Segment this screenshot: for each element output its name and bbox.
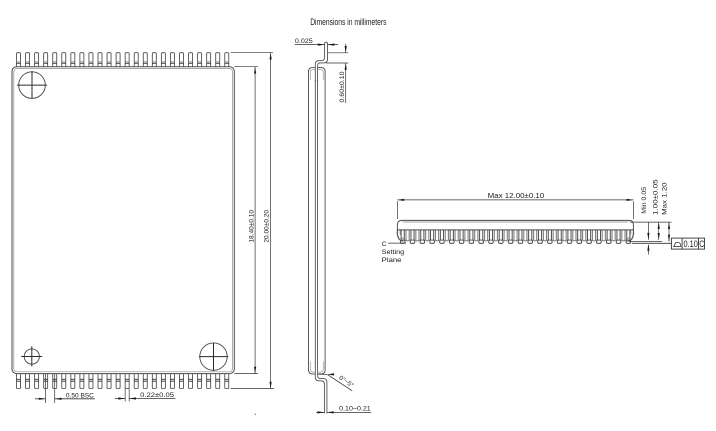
svg-text:C: C xyxy=(699,239,704,249)
svg-text:18.40±0.10: 18.40±0.10 xyxy=(248,210,255,243)
svg-text:20.00±0.20: 20.00±0.20 xyxy=(264,210,271,243)
svg-text:0.50 BSC: 0.50 BSC xyxy=(66,392,95,399)
svg-text:Setting: Setting xyxy=(382,249,405,256)
svg-text:0.60±0.10: 0.60±0.10 xyxy=(339,71,346,102)
svg-text:Plane: Plane xyxy=(382,257,402,264)
svg-text:Dimensions in millimeters: Dimensions in millimeters xyxy=(310,17,387,27)
svg-text:C: C xyxy=(382,241,387,248)
svg-text:Min 0.05: Min 0.05 xyxy=(641,186,648,213)
svg-text:Max 1.20: Max 1.20 xyxy=(662,182,669,215)
svg-text:0.10~0.21: 0.10~0.21 xyxy=(339,405,371,412)
svg-text:0.22±0.05: 0.22±0.05 xyxy=(140,392,174,399)
svg-text:1.00±0.05: 1.00±0.05 xyxy=(652,179,659,215)
svg-text:Max 12.00±0.10: Max 12.00±0.10 xyxy=(488,191,545,200)
svg-text:0.025: 0.025 xyxy=(295,38,313,45)
svg-text:0.10: 0.10 xyxy=(684,239,698,249)
